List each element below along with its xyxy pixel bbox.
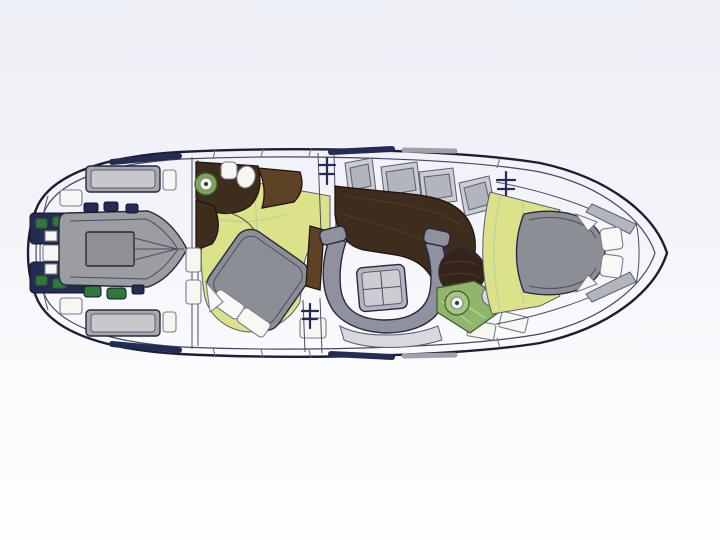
tender-dinghy	[59, 202, 187, 299]
dinghy-chock	[84, 286, 101, 297]
bow-locker-wall	[636, 222, 639, 284]
forward-cabin	[483, 182, 639, 324]
head-shower-drain	[195, 173, 217, 195]
davit-knob	[36, 219, 47, 228]
yacht-floorplan-image	[0, 0, 720, 540]
window-panel-inner	[350, 164, 371, 190]
shower-drain-dot	[204, 182, 208, 186]
dinghy-cleat	[132, 285, 144, 294]
cabin-bench	[186, 280, 201, 304]
dinghy-cleat	[84, 203, 98, 212]
salon-table	[356, 264, 408, 312]
stern-step-box	[163, 170, 176, 190]
cabin-bench	[186, 248, 201, 272]
sunpad-aft-bottom-cushion	[91, 314, 155, 332]
sink-drain-dot	[455, 301, 459, 305]
forward-bed-pillow	[600, 254, 624, 279]
dinghy-cleat	[126, 204, 138, 213]
cleat-strip	[331, 354, 392, 357]
transom-locker	[60, 190, 82, 206]
forward-bed-pillow	[600, 227, 624, 252]
sunpad-aft-top-cushion	[91, 170, 155, 188]
cleat-strip	[331, 149, 392, 152]
floorplan-canvas	[0, 0, 720, 540]
davit-knob	[36, 276, 47, 285]
dinghy-chock	[107, 288, 126, 299]
companionway-steps-icon	[319, 158, 335, 184]
cleat-strip	[112, 156, 179, 162]
boarding-strip	[404, 150, 455, 151]
window-panel-inner	[386, 168, 416, 195]
dinghy-cleat	[104, 202, 118, 211]
davit-plate	[45, 264, 57, 274]
dinghy-engine-box	[86, 232, 134, 266]
cleat-strip	[112, 344, 179, 350]
salon-step-panel	[498, 311, 528, 333]
boarding-strip	[404, 355, 455, 356]
davit-plate	[45, 231, 57, 241]
stern-step-box	[163, 312, 176, 332]
head-vanity	[221, 162, 237, 179]
transom-locker	[60, 298, 82, 314]
